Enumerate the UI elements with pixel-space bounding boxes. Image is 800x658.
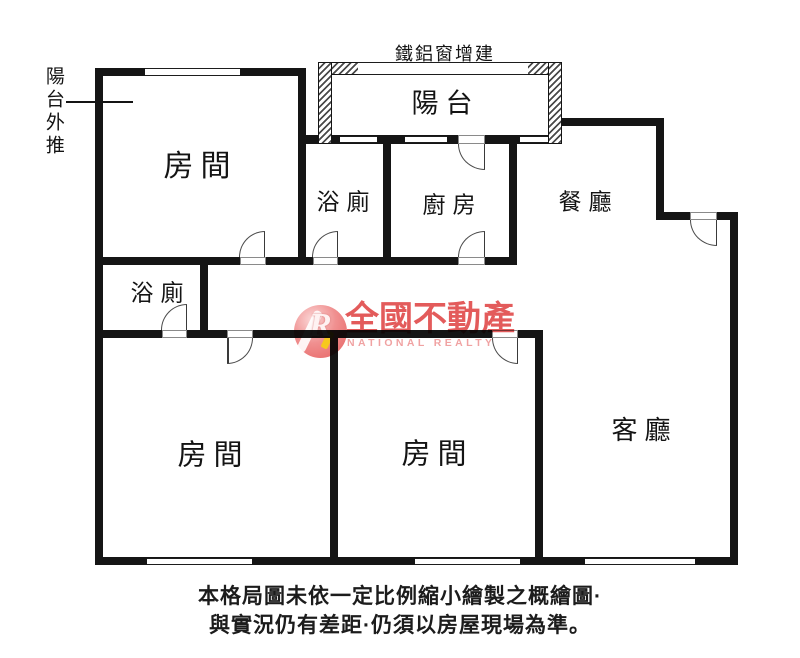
door-arc-bedroom-bl xyxy=(227,338,253,364)
window-dining xyxy=(520,136,548,143)
wall-bedrooms-partition xyxy=(330,330,338,565)
caption-line-2: 與實況仍有差距·仍須以房屋現場為準。 xyxy=(0,611,800,640)
label-living-room: 客廳 xyxy=(604,418,677,444)
floor-plan: 房間 陽台 浴廁 廚房 餐廳 浴廁 房間 房間 客廳 鐵鋁窗增建 陽台外推 R … xyxy=(0,0,800,658)
balcony-hatched-wall-left xyxy=(318,62,332,144)
window-bathroom-top xyxy=(340,136,377,143)
label-dining-room: 餐廳 xyxy=(552,191,619,214)
caption-line-1: 本格局圖未依一定比例縮小繪製之概繪圖· xyxy=(0,582,800,611)
door-opening-bedroom-bm xyxy=(492,330,518,338)
label-kitchen: 廚房 xyxy=(416,194,483,217)
door-opening-bathroom-top xyxy=(313,257,338,265)
label-bedroom-top-left: 房間 xyxy=(157,152,238,182)
door-arc-entry xyxy=(690,220,717,246)
annotation-leader-line xyxy=(66,101,133,103)
door-arc-kitchen-corridor xyxy=(458,231,485,257)
door-arc-bathroom-mid xyxy=(161,304,187,330)
wall-dining-top xyxy=(553,118,664,126)
label-bathroom-middle: 浴廁 xyxy=(124,282,191,305)
label-balcony: 陽台 xyxy=(405,91,480,118)
wall-right-exterior xyxy=(730,212,738,565)
door-arc-bathroom-top xyxy=(312,231,338,257)
wall-dining-right-step xyxy=(656,118,664,220)
window-kitchen xyxy=(405,136,447,143)
label-bedroom-bottom-middle: 房間 xyxy=(394,441,473,470)
annotation-balcony-pushed-out: 陽台外推 xyxy=(42,66,63,166)
door-opening-bedroom-tl xyxy=(240,257,266,265)
watermark-brand-en: NATIONAL REALTY xyxy=(347,338,495,349)
annotation-metal-window-addition: 鐵鋁窗增建 xyxy=(395,45,495,63)
balcony-hatched-wall-right xyxy=(548,62,562,144)
label-bedroom-bottom-left: 房間 xyxy=(170,442,249,471)
window-bedroom-bl xyxy=(147,558,252,565)
door-opening-bedroom-bl xyxy=(227,330,253,338)
wall-bathroom-mid-right xyxy=(200,257,208,338)
window-bedroom-tl xyxy=(145,68,240,76)
door-arc-bedroom-bm xyxy=(492,338,518,364)
wall-kitchen-right xyxy=(509,135,517,265)
door-opening-entry xyxy=(690,212,717,220)
door-opening-kitchen-balcony xyxy=(458,135,485,144)
label-bathroom-top: 浴廁 xyxy=(310,191,377,214)
wall-corridor-top xyxy=(95,257,517,265)
door-opening-kitchen-corridor xyxy=(458,257,485,265)
wall-living-partition xyxy=(535,330,543,565)
door-opening-bathroom-mid xyxy=(162,330,187,338)
window-living xyxy=(585,558,695,565)
door-arc-bedroom-tl xyxy=(239,231,265,257)
wall-left-exterior xyxy=(95,68,103,565)
wall-kitchen-left xyxy=(383,135,391,265)
wall-bedroom-tl-right xyxy=(298,68,306,265)
window-bedroom-bm xyxy=(415,558,520,565)
door-arc-kitchen-balcony xyxy=(458,144,485,170)
caption: 本格局圖未依一定比例縮小繪製之概繪圖· 與實況仍有差距·仍須以房屋現場為準。 xyxy=(0,582,800,640)
